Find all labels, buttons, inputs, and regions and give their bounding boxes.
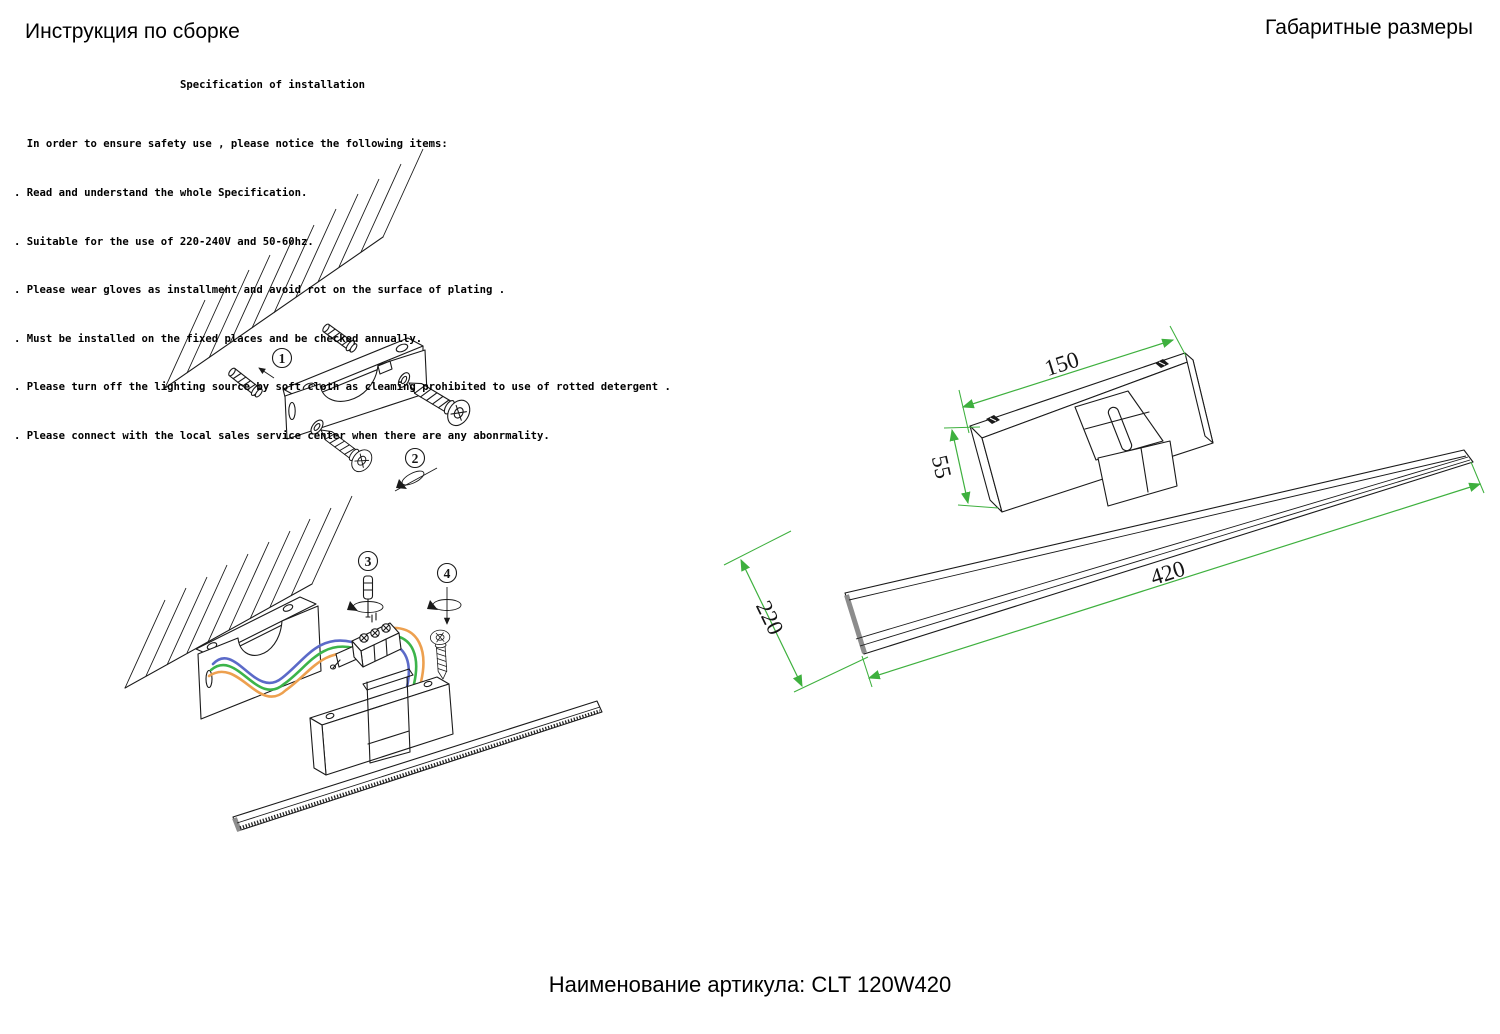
spec-line: In order to ensure safety use , please n… xyxy=(14,136,671,152)
step-number: 3 xyxy=(365,554,372,569)
dimension-label: 220 xyxy=(751,597,789,639)
step-marker-4: 4 xyxy=(438,564,457,583)
overall-dimensions-drawing: 150 55 420 220 xyxy=(724,326,1484,692)
screwdriver-icon xyxy=(347,576,383,617)
spec-line: . Please turn off the lighting source by… xyxy=(14,379,671,395)
article-name: Наименование артикула: CLT 120W420 xyxy=(0,972,1500,998)
spec-line: . Must be installed on the fixed places … xyxy=(14,331,671,347)
dimension-label: 150 xyxy=(1041,347,1081,381)
terminal-screw xyxy=(360,634,368,642)
dimension-220: 220 xyxy=(724,531,868,692)
page-title-assembly: Инструкция по сборке xyxy=(25,20,240,44)
page-title-dimensions: Габаритные размеры xyxy=(1265,16,1473,40)
terminal-screw xyxy=(382,624,390,632)
spec-text-block: In order to ensure safety use , please n… xyxy=(14,104,671,460)
spec-heading: Specification of installation xyxy=(180,79,365,91)
instruction-sheet: { "header": { "title_left": "Инструкция … xyxy=(0,0,1500,1034)
install-step3-4-diagram: 3 4 xyxy=(125,496,602,831)
dimension-label: 55 xyxy=(927,453,957,481)
spec-line: . Suitable for the use of 220-240V and 5… xyxy=(14,234,671,250)
rotate-screw-glyph xyxy=(395,468,437,491)
spec-line: . Read and understand the whole Specific… xyxy=(14,185,671,201)
spec-line: . Please connect with the local sales se… xyxy=(14,428,671,444)
step-marker-3: 3 xyxy=(359,552,378,571)
step-number: 4 xyxy=(444,566,451,581)
terminal-screw xyxy=(371,629,379,637)
rotate-screw-glyph xyxy=(427,587,461,624)
spec-line: . Please wear gloves as installment and … xyxy=(14,282,671,298)
lamp-fixing-screw xyxy=(430,629,453,679)
